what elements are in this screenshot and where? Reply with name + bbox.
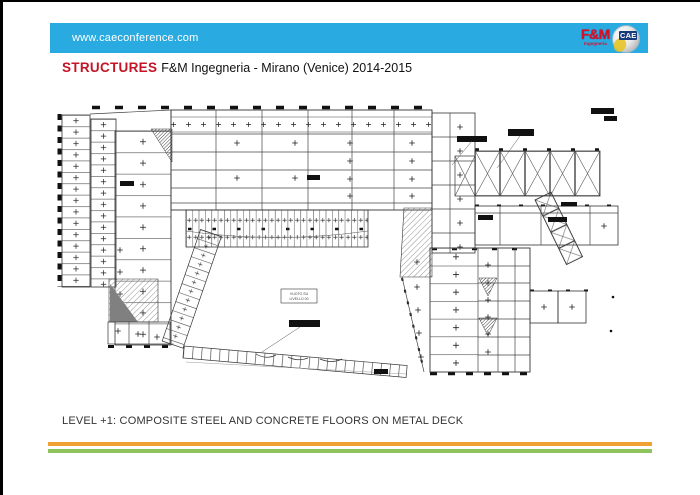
fm-ingegneria-logo: F&M Ingegneria: [581, 27, 610, 47]
fm-logo-subtext: Ingegneria: [581, 42, 610, 47]
floor-plan: VUOTO SU LIVELLO 00: [55, 95, 645, 405]
slide-title-rest: F&M Ingegneria - Mirano (Venice) 2014-20…: [161, 61, 412, 75]
courtyard: VUOTO SU LIVELLO 00: [256, 289, 342, 362]
hatched-triangle-wing-2: [479, 318, 497, 336]
cae-logo: CAE: [612, 25, 640, 53]
cae-logo-text: CAE: [619, 31, 637, 40]
conference-url: www.caeconference.com: [72, 32, 198, 44]
header-bar: www.caeconference.com F&M Ingegneria CAE: [50, 23, 648, 53]
slide-title: STRUCTURESF&M Ingegneria - Mirano (Venic…: [62, 60, 412, 75]
fm-logo-text: F&M: [581, 27, 610, 41]
right-wing: [430, 248, 586, 372]
x-braced-bridge: [455, 151, 600, 196]
slide-left-border: [0, 0, 3, 495]
top-band: [171, 110, 432, 210]
void-label-line1: VUOTO SU: [290, 292, 309, 296]
footer-stripe-green: [48, 449, 652, 453]
footer-stripe-orange: [48, 442, 652, 446]
walkway: [183, 346, 407, 377]
slide-top-border: [0, 0, 700, 2]
hatched-square-bottom-left: [109, 279, 158, 322]
level-caption: LEVEL +1: COMPOSITE STEEL AND CONCRETE F…: [62, 415, 463, 427]
slide-title-emphasis: STRUCTURES: [62, 60, 157, 75]
floor-plan-svg: VUOTO SU LIVELLO 00: [55, 95, 645, 405]
hatched-triangle-wing-1: [479, 278, 497, 296]
hatched-wedge: [400, 208, 432, 372]
void-label-line2: LIVELLO 00: [289, 297, 308, 301]
